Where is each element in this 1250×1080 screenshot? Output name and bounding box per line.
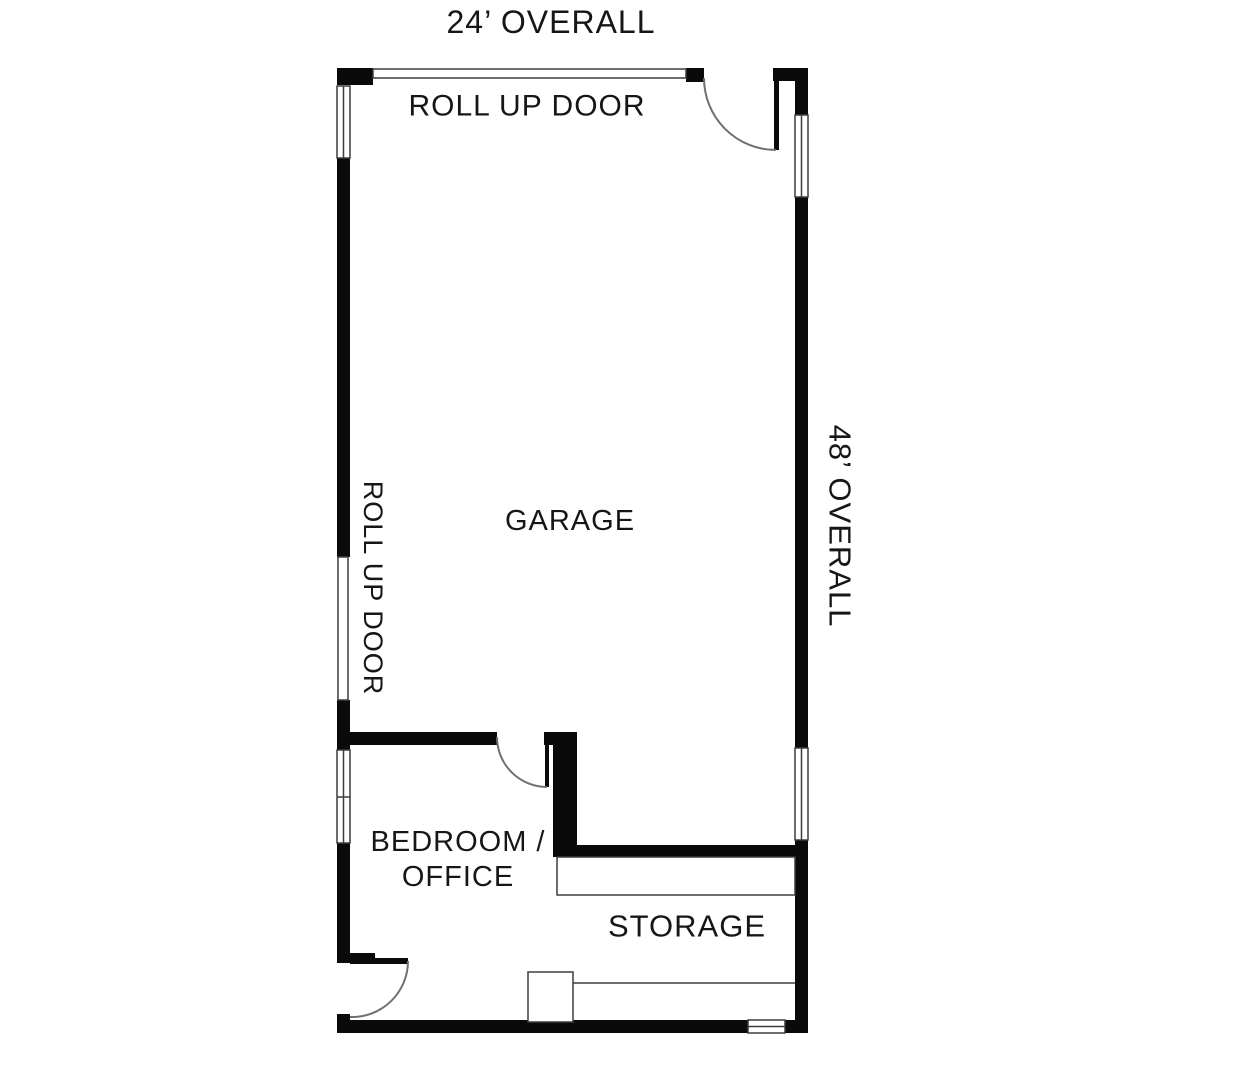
wall-left-lower (337, 843, 350, 955)
window-right-lower (795, 748, 808, 840)
entry-door-swing-arc (704, 78, 776, 150)
wall-left-middle (337, 700, 350, 750)
corner-post-top-left (337, 68, 373, 85)
window-left-upper (337, 86, 350, 158)
bedroom-door-leaf (545, 737, 549, 787)
wall-storage-top (553, 845, 795, 857)
wall-interior-vertical (553, 732, 577, 857)
wall-right-upper (795, 197, 808, 748)
window-right-upper (795, 115, 808, 197)
wall-left-upper (337, 158, 350, 557)
storage-shelf (557, 857, 795, 895)
rollup-doors (338, 69, 686, 700)
overall-width-dimension-label: 24’ OVERALL (446, 4, 655, 40)
labels: 24’ OVERALL ROLL UP DOOR GARAGE ROLL UP … (358, 4, 858, 944)
bedroom-office-label-line2: OFFICE (402, 861, 514, 893)
rollup-door-top-label: ROLL UP DOOR (408, 90, 645, 123)
corner-post-top-right-vertical (795, 68, 808, 115)
wall-bedroom-top (350, 732, 497, 745)
storage-room-label: STORAGE (608, 909, 766, 944)
bedroom-door-swing-arc (497, 737, 547, 787)
rollup-door-left-label: ROLL UP DOOR (358, 481, 388, 696)
wall-stub-top-right-of-rollup (686, 68, 704, 82)
floor-plan-drawing: 24’ OVERALL ROLL UP DOOR GARAGE ROLL UP … (0, 0, 1250, 1080)
bedroom-office-label-line1: BEDROOM / (371, 826, 546, 858)
garage-room-label: GARAGE (505, 505, 635, 537)
vent-bottom-wall (748, 1020, 785, 1033)
window-left-bedroom (337, 750, 350, 843)
exterior-door-leaf-bottom-left (350, 958, 408, 964)
floor-plan-page: 24’ OVERALL ROLL UP DOOR GARAGE ROLL UP … (0, 0, 1250, 1080)
utility-unit (528, 972, 573, 1022)
wall-right-lower (795, 840, 808, 1033)
overall-height-dimension-label: 48’ OVERALL (823, 425, 858, 628)
corner-post-bottom-right (785, 1020, 808, 1033)
entry-door-leaf-top-right (774, 78, 779, 150)
exterior-door-swing-arc (350, 961, 408, 1017)
rollup-door-left (338, 557, 348, 700)
rollup-door-top (373, 69, 686, 78)
